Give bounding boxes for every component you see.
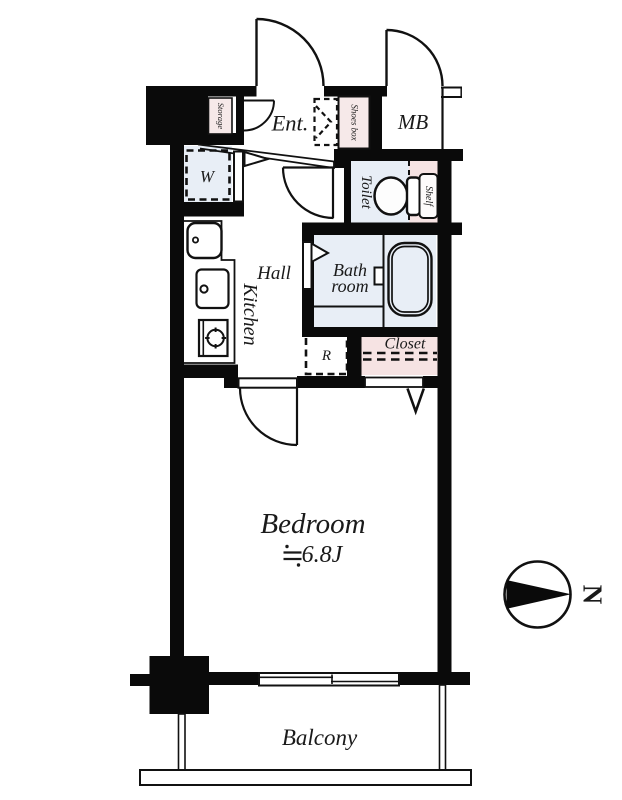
svg-text:Shelf: Shelf (423, 186, 434, 207)
svg-text:Hall: Hall (256, 263, 291, 284)
svg-text:6.8J: 6.8J (302, 542, 344, 568)
svg-text:Balcony: Balcony (282, 725, 358, 750)
svg-text:Bedroom: Bedroom (260, 508, 365, 540)
svg-text:W: W (200, 167, 216, 186)
svg-text:R: R (321, 348, 331, 364)
svg-text:Kitchen: Kitchen (239, 282, 261, 345)
svg-text:Ent.: Ent. (271, 111, 309, 136)
svg-text:room: room (331, 276, 368, 296)
svg-text:Storage: Storage (216, 103, 226, 130)
svg-text:Closet: Closet (385, 336, 426, 353)
svg-text:Toilet: Toilet (358, 175, 374, 209)
svg-text:MB: MB (397, 110, 428, 134)
svg-text:N: N (577, 585, 607, 605)
svg-text:Shoes box: Shoes box (349, 104, 359, 140)
